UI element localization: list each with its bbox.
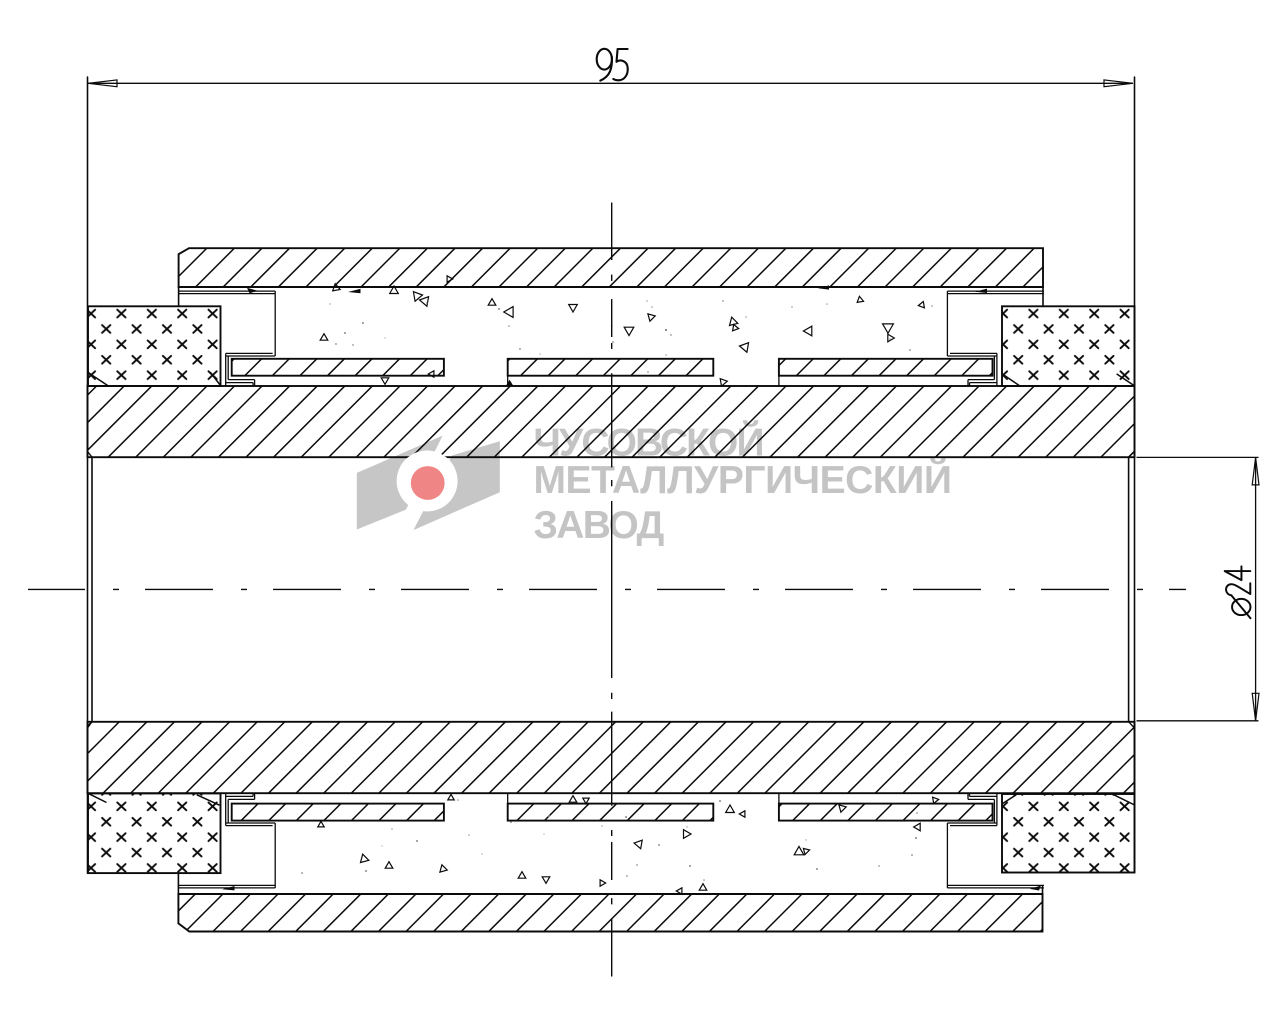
svg-text:ЗАВОД: ЗАВОД bbox=[534, 504, 665, 547]
svg-text:МЕТАЛЛУРГИЧЕСКИЙ: МЕТАЛЛУРГИЧЕСКИЙ bbox=[534, 457, 952, 502]
